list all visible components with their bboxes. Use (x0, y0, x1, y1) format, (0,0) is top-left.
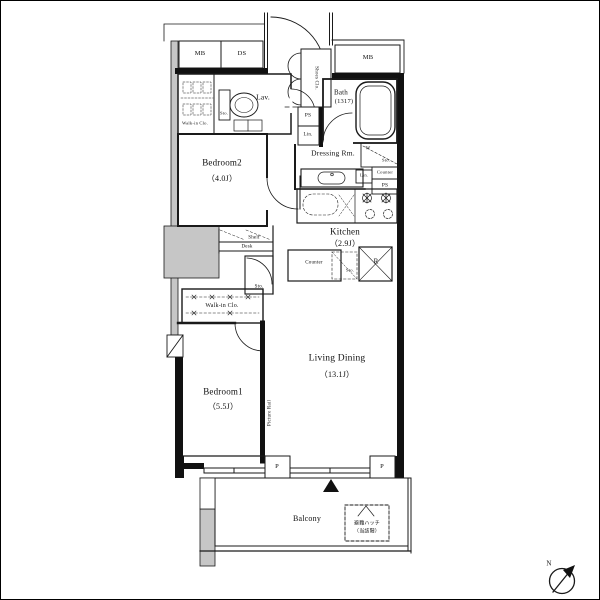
label-shoes-closet: Shoes Clo. (314, 66, 319, 90)
walkin-closet-top-hangers (181, 82, 213, 115)
label-lavatory: Lav. (256, 93, 270, 101)
label-kitchen-name: Kitchen (330, 228, 360, 237)
label-bedroom1-name: Bedroom1 (203, 388, 243, 397)
label-walkin-closet-bottom: Walk-in Clo. (205, 303, 238, 309)
label-bedroom2-size: （4.0J） (207, 175, 237, 183)
label-ps-hall: PS (305, 113, 312, 119)
label-bedroom1-size: （5.5J） (208, 403, 238, 411)
label-sto-lavatory: Sto. (220, 112, 228, 117)
floorplan-linework (1, 1, 600, 600)
label-mb-right: MB (363, 55, 374, 62)
balcony-windows (204, 456, 395, 478)
bedroom2-walls (178, 134, 300, 226)
label-lin-hall: Lin. (304, 133, 313, 138)
label-dressing-room: Dressing Rm. (311, 149, 355, 157)
label-walkin-closet-top: Walk-in Clo. (182, 122, 208, 127)
label-ps-right: PS (382, 183, 389, 189)
label-living-dining-name: Living Dining (309, 354, 366, 364)
label-pillar-right: P (380, 464, 384, 471)
label-washer: W (366, 147, 371, 152)
label-sto-middle: Sto. (255, 285, 264, 290)
side-window-icon (167, 335, 183, 357)
stove-icon (363, 193, 393, 219)
bathtub-icon (356, 82, 395, 139)
label-sto-washer: Sto. (382, 159, 390, 164)
label-lin-right: Lin. (360, 174, 368, 179)
kitchen-island (288, 250, 357, 281)
direction-triangle (323, 479, 339, 492)
label-hatch-line2: （当該階） (354, 530, 380, 535)
label-counter-island: Counter (305, 261, 323, 266)
label-bedroom2-name: Bedroom2 (202, 159, 242, 168)
label-sto-counter: Sto. (346, 269, 354, 274)
label-hatch-line1: 避難ハッチ (354, 522, 380, 527)
label-mb-left: MB (195, 51, 206, 58)
label-shelf: Shelf (248, 236, 260, 241)
shelf-desk (219, 226, 273, 294)
label-pillar-left: P (275, 464, 279, 471)
label-kitchen-size: （2.9J） (330, 240, 360, 248)
label-north: N (546, 561, 551, 568)
label-picture-rail: Picture Rail (268, 400, 273, 426)
label-desk: Desk (241, 245, 252, 250)
vanity-sink-icon (301, 169, 363, 187)
label-balcony: Balcony (293, 515, 321, 523)
label-ds: DS (238, 51, 247, 58)
label-bath-size: (1317) (335, 99, 354, 106)
label-bath-name: Bath (334, 90, 348, 97)
floor-plan: MB DS MB Shoes Clo. Walk-in Clo. Sto. La… (0, 0, 600, 600)
label-living-dining-size: （13.1J） (320, 371, 355, 379)
label-counter-right: Counter (377, 171, 393, 176)
north-compass (550, 565, 576, 594)
meter-boxes (164, 24, 404, 73)
label-refrigerator: R (374, 259, 379, 266)
